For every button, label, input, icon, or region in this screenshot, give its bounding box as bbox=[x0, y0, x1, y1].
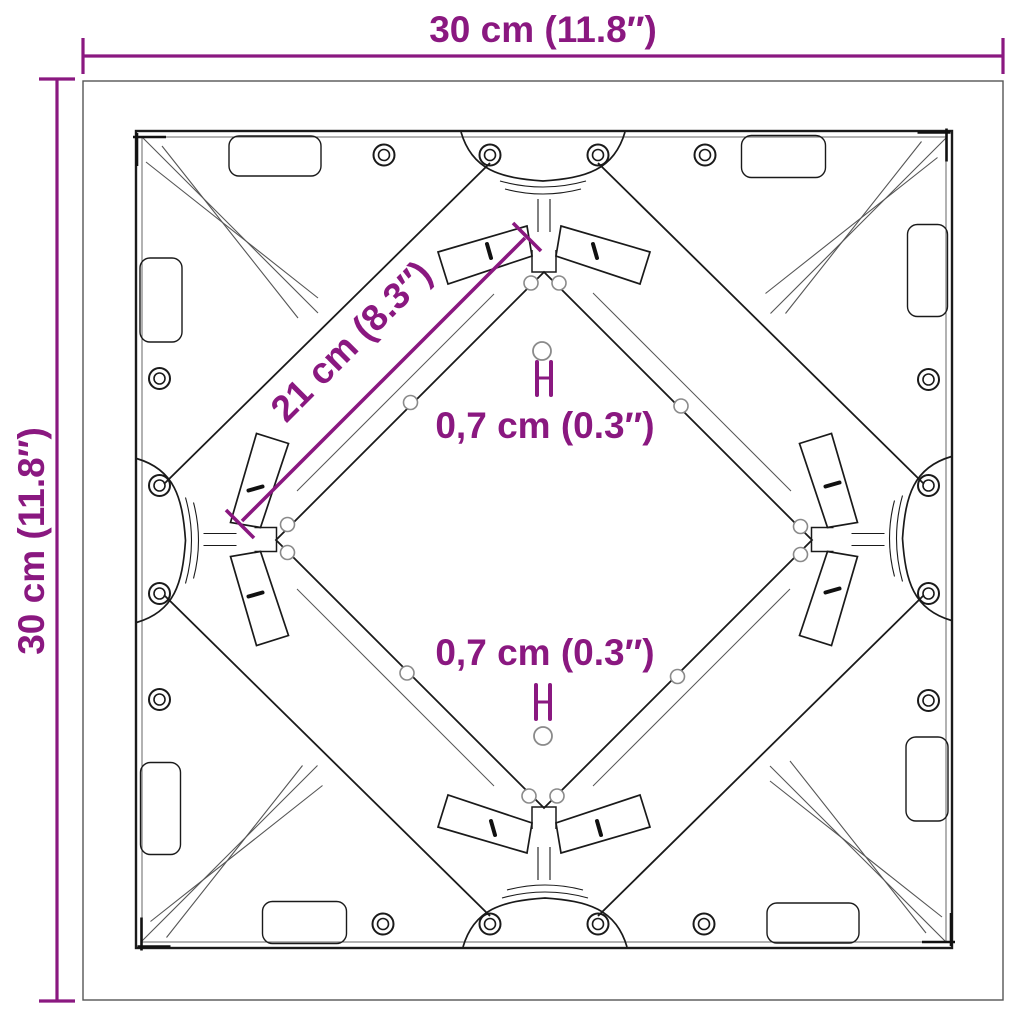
technical-drawing: 30 cm (11.8″) 30 cm (11.8″) 21 cm (8.3″)… bbox=[0, 0, 1024, 1024]
mounting-plates bbox=[164, 163, 924, 916]
dimension-hole-top: 0,7 cm (0.3″) bbox=[435, 342, 654, 446]
height-dimension-label: 30 cm (11.8″) bbox=[11, 427, 52, 655]
base-plate-drawing bbox=[83, 81, 1003, 1000]
corner-gussets bbox=[133, 129, 955, 951]
chevron-brackets bbox=[231, 226, 858, 853]
hole-bottom-dimension-label: 0,7 cm (0.3″) bbox=[435, 632, 654, 673]
hole-width-marker-bottom bbox=[536, 685, 550, 719]
hole-top-dimension-label: 0,7 cm (0.3″) bbox=[435, 405, 654, 446]
diagram-page: 30 cm (11.8″) 30 cm (11.8″) 21 cm (8.3″)… bbox=[0, 0, 1024, 1024]
hole-width-marker-top bbox=[537, 362, 551, 395]
dimension-width: 30 cm (11.8″) bbox=[83, 9, 1003, 74]
dimension-height: 30 cm (11.8″) bbox=[11, 79, 75, 1001]
width-dimension-label: 30 cm (11.8″) bbox=[429, 9, 657, 50]
dimension-hole-bottom: 0,7 cm (0.3″) bbox=[435, 632, 654, 745]
dimension-diagonal: 21 cm (8.3″) bbox=[226, 223, 541, 538]
